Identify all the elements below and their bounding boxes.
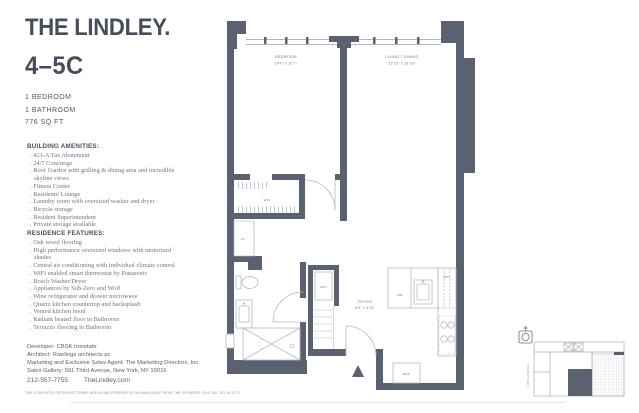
keyplan-marker [614,352,624,355]
amenity-item: Residents' Lounge [27,191,175,199]
feature-item: Central air conditioning with individual… [27,262,175,270]
floorplan-sheet: THE LINDLEY. 4–5C 1 BEDROOM1 BATHROOM776… [0,0,639,413]
toilet [236,276,258,289]
bedroom-door [305,180,335,210]
keyplan-terrace-hatch [592,354,624,396]
dw-label: DW [397,293,403,297]
separator-dotted-line [70,402,565,403]
legal-fine-print: THE COMPLETE OFFERING TERMS ARE IN AN OF… [25,391,241,395]
amenity-item: Laundry room with oversized washer and d… [27,198,175,206]
mw-label: MW [444,275,450,279]
cl-label: CL [241,237,245,241]
bathroom-door [273,292,303,322]
unit-number: 4–5C [25,52,84,81]
amenities-heading: BUILDING AMENITIES: [27,143,99,150]
feature-item: Terrazzo flooring in Bathroom [27,324,175,332]
kitchen-tall-cabinets [438,268,456,356]
feature-item: Oak wood flooring [27,239,175,247]
agent-line: Marketing and Exclusive Sales Agent: The… [27,359,222,367]
amenity-item: 24/7 Concierge [27,160,175,168]
feature-item: Appliances by Sub-Zero and Wolf [27,285,175,293]
spec-line: 1 BEDROOM [25,92,76,105]
feature-item: Quartz kitchen countertop and backsplash [27,301,175,309]
info-column: THE LINDLEY. 4–5C 1 BEDROOM1 BATHROOM776… [25,0,225,413]
architect-line: Architect: Rawlings architects pc [27,351,222,359]
living-label: LIVING / DINING [385,55,418,59]
amenity-item: Bicycle storage [27,206,175,214]
features-list: Oak wood flooringHigh performance oversi… [27,239,175,331]
bedroom-dims: 14'0" x 10'7" [275,62,298,66]
feature-item: WiFi enabled smart thermostat by Panason… [27,270,175,278]
shower [243,328,300,360]
feature-item: High performance oversized windows with … [27,247,175,262]
foyer-dims: 8'9" x 4'10" [355,306,376,310]
contact-row: 212-557-7755 TheLindley.com [27,377,130,384]
foyer-label: FOYER [358,300,373,304]
ref-label: REF [403,372,410,376]
building-keyplan: 3RD AVENUE [512,322,632,404]
amenity-item: Fitness Center [27,183,175,191]
feature-item: Radiant heated floor in Bathroom [27,316,175,324]
bedroom-label: BEDROOM [275,55,297,59]
feature-item: Vented kitchen hood [27,308,175,316]
contact-block: Developer: CBSK Ironstate Architect: Raw… [27,343,222,375]
north-arrow-icon [519,326,532,343]
amenity-item: Resident Superintendent [27,214,175,222]
vanity-sink [236,300,252,328]
wd-label: W/D [320,285,327,289]
brand-title: THE LINDLEY. [25,14,170,42]
linen-shelves [314,306,334,349]
website-link: TheLindley.com [84,377,130,384]
amenity-item: 421-A Tax Abatement [27,152,175,160]
phone-number: 212-557-7755 [27,377,68,384]
feature-item: Wine refrigerator and drawer microwave [27,293,175,301]
kitchen-counter [388,268,438,308]
spec-line: 1 BATHROOM [25,105,76,118]
gallery-line: Sales Gallery: 591 Third Avenue, New Yor… [27,367,222,375]
amenity-item: Roof Garden with grilling & dining area … [27,167,175,182]
amenities-list: 421-A Tax Abatement24/7 ConciergeRoof Ga… [27,152,175,229]
spec-line: 776 SQ FT [25,117,76,130]
features-heading: RESIDENCE FEATURES: [27,230,105,237]
street-label: 3RD AVENUE [526,364,530,386]
feature-item: Bosch Washer/Dryer [27,278,175,286]
range-burners [439,316,455,354]
living-dims: 22'10" x 16'10" [389,62,416,66]
developer-line: Developer: CBSK Ironstate [27,343,222,351]
amenity-item: Private storage available [27,221,175,229]
entry-door [346,326,376,356]
keyplan-unit-highlight [568,369,592,396]
unit-specs: 1 BEDROOM1 BATHROOM776 SQ FT [25,92,76,130]
wic-label: WIC [264,198,271,202]
wall-niche [226,334,234,348]
unit-floorplan: BEDROOM 14'0" x 10'7" LIVING / DINING 22… [222,10,480,395]
entry-arrow-icon [352,365,364,377]
